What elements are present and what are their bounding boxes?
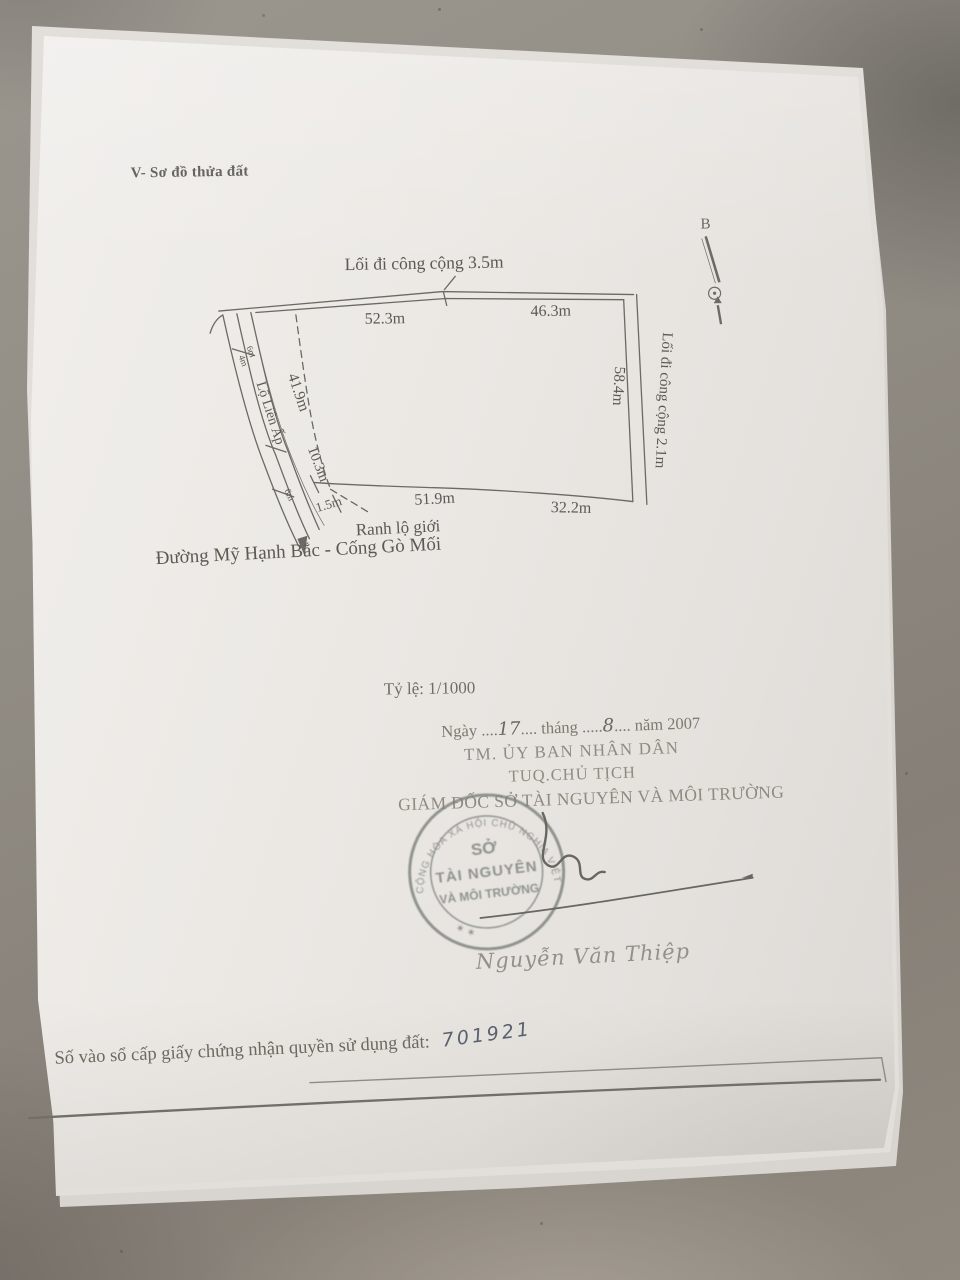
parcel-diagram-svg: B Lối đi công cộng 3.5m 52.3m 46.3m 58.4…: [0, 0, 960, 1280]
public-path-right-line: [637, 294, 647, 504]
road-width-tick-2: [266, 445, 286, 452]
right-path-label: Lối đi công cộng 2.1m: [652, 332, 675, 469]
left-road-label: Lộ Liên Ấp: [253, 379, 289, 446]
dimension-label-bottom-left: 51.9m: [414, 490, 456, 509]
dimension-label-top-left: 52.3m: [365, 310, 406, 328]
label-leader-tick: [444, 276, 455, 289]
stamp-center-line-1: SỞ: [470, 838, 498, 860]
top-path-label: Lối đi công cộng 3.5m: [344, 252, 504, 275]
north-arrow-tail: [718, 305, 721, 324]
north-label: B: [700, 216, 710, 232]
footer-rule-corner: [882, 1058, 886, 1082]
dimension-label-left-upper: 41.9m: [284, 371, 313, 414]
north-arrow-dot: [713, 292, 716, 295]
footer-rule-main: [29, 1080, 880, 1118]
signature-arrow-tip: [742, 874, 753, 878]
footer-rules: [29, 1058, 887, 1118]
dimension-label-right: 58.4m: [609, 366, 628, 406]
dimension-label-bottom-right: 32.2m: [551, 499, 592, 517]
dimension-label-bottom-small: 1.5m: [314, 493, 344, 515]
dimension-label-left-lower: 10.3m: [304, 444, 332, 485]
north-arrow: B: [700, 216, 722, 324]
dust-specks: [0, 0, 3, 3]
photo-background: V- Sơ đồ thửa đất Tỷ lệ: 1/1000 Ngày ...…: [0, 0, 960, 1280]
document-content: V- Sơ đồ thửa đất Tỷ lệ: 1/1000 Ngày ...…: [0, 0, 960, 1280]
dimension-label-top-right: 46.3m: [530, 303, 571, 321]
diagram-labels: Lối đi công cộng 3.5m 52.3m 46.3m 58.4m …: [151, 249, 679, 569]
road-hook: [210, 315, 223, 333]
footer-rule-upper: [310, 1058, 882, 1083]
official-stamp: CỘNG HÒA XÃ HỘI CHỦ NGHĨA VIỆT NAM ✶ ✶ S…: [401, 786, 572, 957]
